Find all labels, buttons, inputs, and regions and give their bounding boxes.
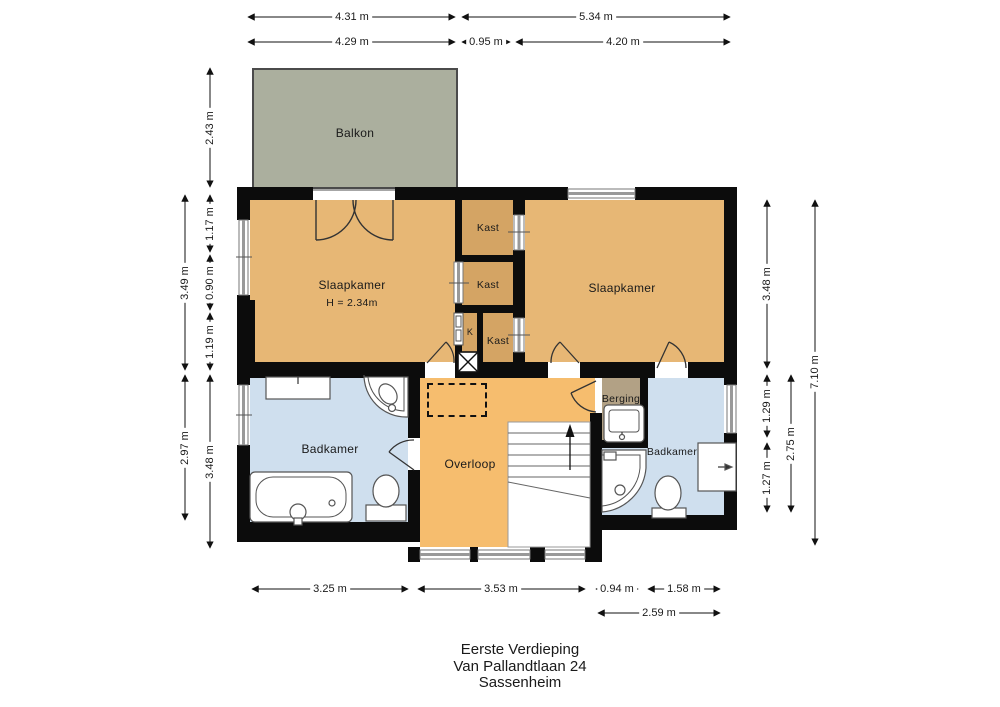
dim-top2-right: 4.20 m xyxy=(603,36,643,48)
wall xyxy=(477,313,483,362)
dim-top1-right: 5.34 m xyxy=(576,11,616,23)
dim-left-inner-balcony: 2.43 m xyxy=(204,108,216,148)
dim-left-inner-a: 1.17 m xyxy=(204,204,216,244)
wall xyxy=(237,522,420,542)
dim-right-outer: 7.10 m xyxy=(809,352,821,392)
wall xyxy=(408,378,420,438)
wall xyxy=(395,187,568,200)
dim-top2-left: 4.29 m xyxy=(332,36,372,48)
dim-bottom2: 2.59 m xyxy=(639,607,679,619)
kast-bottom-label: Kast xyxy=(487,335,509,347)
wall xyxy=(640,378,648,445)
wall xyxy=(724,187,737,385)
title-city: Sassenheim xyxy=(453,675,586,692)
wall xyxy=(470,547,478,562)
floorplan-page: Balkon Slaapkamer H = 2.34m Slaapkamer K… xyxy=(0,0,1000,707)
wall xyxy=(237,187,250,220)
balkon-label: Balkon xyxy=(336,126,375,140)
dim-right-inner-mid: 1.29 m xyxy=(761,386,773,426)
dim-right-mid: 2.75 m xyxy=(785,424,797,464)
slaapkamer-left-height-note: H = 2.34m xyxy=(326,297,377,309)
slaapkamer-left-label: Slaapkamer xyxy=(318,278,385,292)
wall xyxy=(585,547,602,562)
skylight-dashed-outline xyxy=(427,383,487,417)
dim-bottom1-a: 3.25 m xyxy=(310,583,350,595)
dim-left-inner-b: 0.90 m xyxy=(204,263,216,303)
dim-top2-mid: 0.95 m xyxy=(466,36,506,48)
wall xyxy=(455,345,462,362)
wall xyxy=(455,305,525,313)
kast-middle-label: Kast xyxy=(477,279,499,291)
wall xyxy=(590,515,737,530)
wall xyxy=(513,197,525,215)
wall-jog xyxy=(237,300,255,362)
dim-top1-left: 4.31 m xyxy=(332,11,372,23)
wall xyxy=(455,197,462,262)
badkamer-right-label: Badkamer xyxy=(647,446,697,458)
wall xyxy=(237,362,425,378)
dim-left-inner-c: 1.19 m xyxy=(204,322,216,362)
wall xyxy=(513,352,525,362)
berging-label: Berging xyxy=(602,393,640,405)
wall xyxy=(530,547,545,562)
badkamer-left-label: Badkamer xyxy=(301,442,358,456)
dim-bottom1-d: 1.58 m xyxy=(664,583,704,595)
wall xyxy=(408,547,420,562)
dim-left-outer-top: 3.49 m xyxy=(179,263,191,303)
dim-right-inner-bottom: 1.27 m xyxy=(761,458,773,498)
wall xyxy=(580,362,655,378)
dim-right-inner-top: 3.48 m xyxy=(761,264,773,304)
overloop-label: Overloop xyxy=(444,457,495,471)
title-address: Van Pallandtlaan 24 xyxy=(453,659,586,676)
dim-bottom1-b: 3.53 m xyxy=(481,583,521,595)
wall xyxy=(455,362,548,378)
wall xyxy=(455,255,525,262)
room-berging xyxy=(602,378,640,440)
title-floor: Eerste Verdieping xyxy=(453,642,586,659)
slaapkamer-right-label: Slaapkamer xyxy=(588,281,655,295)
dim-left-inner-d: 3.48 m xyxy=(204,442,216,482)
k-closet-label: K xyxy=(467,327,473,337)
kast-top-label: Kast xyxy=(477,222,499,234)
wall xyxy=(590,440,648,448)
room-badkamer-right-ext xyxy=(602,448,648,515)
dim-left-outer-bottom: 2.97 m xyxy=(179,428,191,468)
wall xyxy=(635,187,737,200)
wall xyxy=(688,362,737,378)
title-block: Eerste Verdieping Van Pallandtlaan 24 Sa… xyxy=(453,642,586,692)
dim-bottom1-c: 0.94 m xyxy=(597,583,637,595)
